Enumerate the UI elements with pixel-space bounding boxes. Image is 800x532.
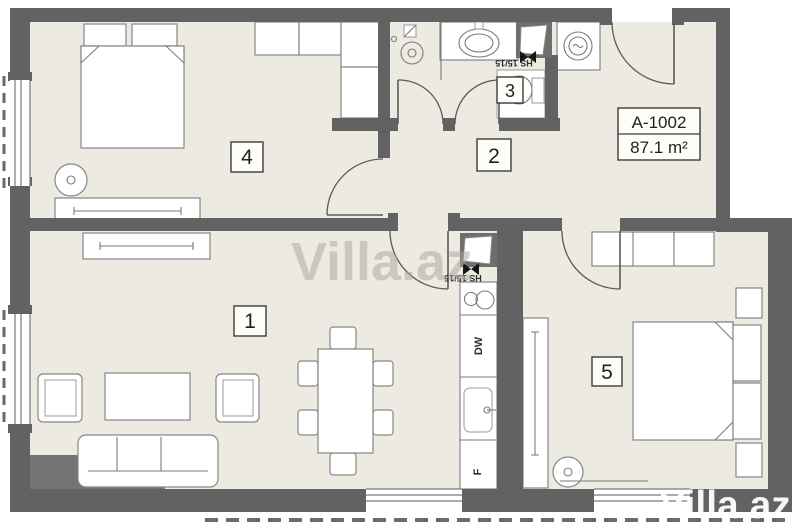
wardrobe-icon	[255, 22, 299, 55]
room-label-1-text: 1	[244, 310, 256, 333]
chair-icon	[330, 453, 356, 475]
coffee-table-icon	[105, 373, 190, 420]
pillow-icon	[132, 24, 177, 46]
watermark-center: Villa.az	[291, 232, 473, 292]
chair-icon	[298, 410, 318, 435]
bed-icon	[633, 322, 733, 440]
bed-icon	[81, 46, 184, 148]
wardrobe-icon	[341, 22, 379, 67]
unit-code: A-1002	[632, 113, 687, 132]
wardrobe-icon	[592, 232, 714, 266]
floor-plan-page: 4 2 3 1 5 A-1002 87.1 m² HS 15/15 HS 15/…	[0, 0, 800, 532]
room-label-4-text: 4	[241, 146, 253, 169]
toilet-tank	[532, 78, 544, 103]
kitchen-counter	[460, 282, 497, 489]
stool-icon	[55, 164, 87, 196]
floor-plan: 4 2 3 1 5 A-1002 87.1 m² HS 15/15 HS 15/…	[0, 0, 800, 532]
chair-icon	[373, 361, 393, 386]
chair-icon	[330, 327, 356, 349]
wardrobe-icon	[299, 22, 341, 55]
vent-label: HS 15/15	[495, 58, 533, 68]
room-label-3-text: 3	[505, 81, 515, 101]
pillow-icon	[733, 383, 761, 439]
kitchen	[460, 282, 497, 489]
unit-area: 87.1 m²	[630, 138, 688, 157]
window	[4, 310, 30, 428]
dining-table-icon	[318, 349, 373, 453]
unit-info-box: A-1002 87.1 m²	[618, 108, 700, 160]
stool-icon	[553, 457, 583, 487]
watermark-corner: Villa.az	[659, 484, 791, 527]
chair-icon	[373, 410, 393, 435]
room-label-2-text: 2	[488, 145, 500, 168]
room-label-5-text: 5	[601, 361, 613, 384]
nightstand-icon	[736, 288, 762, 318]
pillow-icon	[84, 24, 126, 46]
nightstand-icon	[736, 443, 762, 477]
dishwasher-label: DW	[473, 336, 485, 355]
chair-icon	[298, 361, 318, 386]
wardrobe-icon	[341, 67, 379, 118]
window	[4, 76, 30, 190]
window	[366, 489, 462, 512]
fridge-label: F	[472, 468, 484, 475]
pillow-icon	[733, 325, 761, 381]
sofa-icon	[78, 435, 218, 487]
